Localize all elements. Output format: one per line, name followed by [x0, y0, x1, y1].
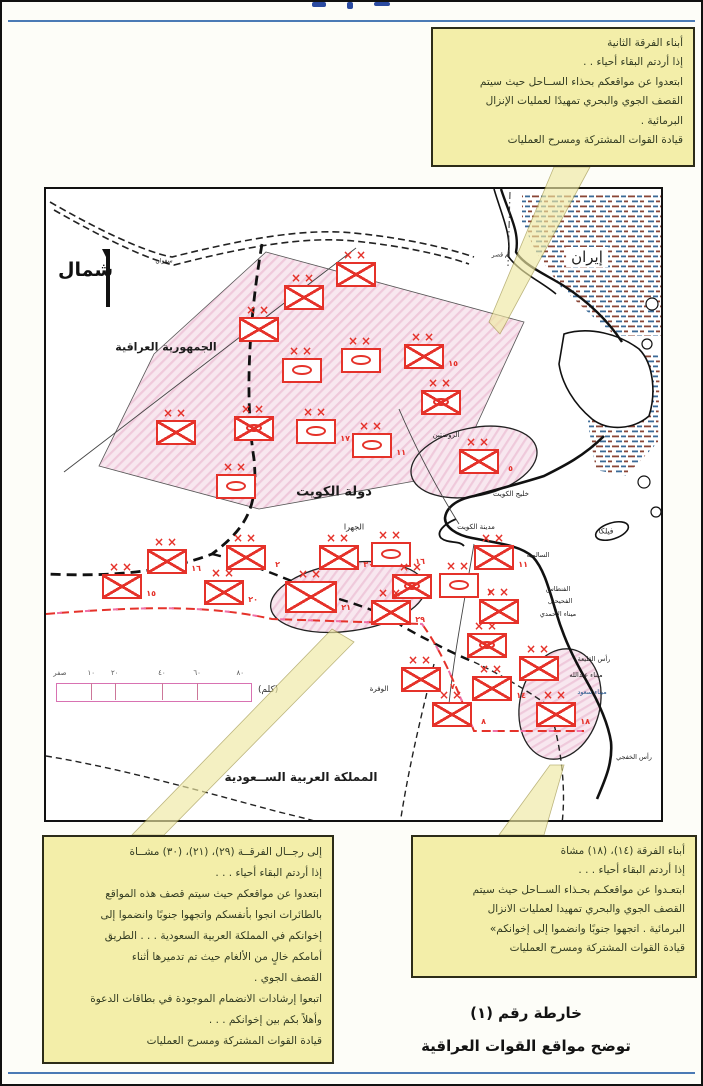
infantry-division-symbol: ××٥ — [459, 449, 499, 474]
infantry-division-symbol: ××٢٠ — [204, 580, 244, 605]
bubiyan-island — [559, 331, 653, 428]
callout-line: قيادة القوات المشتركة ومسرح العمليات — [54, 1031, 322, 1052]
top-rule — [8, 20, 695, 22]
scale-tick: ٢٠ — [111, 669, 119, 677]
division-number: ١٨ — [580, 717, 590, 726]
callout-line: إذا أردتم البقاء أحياء . . — [443, 53, 683, 72]
infantry-division-symbol: ××٨ — [432, 702, 472, 727]
callout-line: اتبعوا إرشادات الانضمام الموجودة في بطاق… — [54, 989, 322, 1010]
place-label: الجمهورية العراقية — [115, 341, 216, 354]
division-echelon-mark: ×× — [538, 689, 574, 701]
islet — [638, 476, 650, 488]
islet — [651, 507, 661, 517]
islet — [642, 339, 652, 349]
scale-divider — [91, 683, 92, 700]
division-number: ١١ — [518, 560, 528, 569]
scale-tick: ١٠ — [88, 669, 96, 677]
division-echelon-mark: ×× — [521, 643, 557, 655]
callout-divisions-29-21-30: إلى رجــال الفرقــة (٢٩)، (٢١)، (٣٠) مشـ… — [42, 835, 334, 1064]
callout-line: أمامكم خالٍ من الألغام حيث تم تدميرها أث… — [54, 947, 322, 968]
infantry-division-symbol: ××٢١ — [285, 581, 337, 613]
armored-division-symbol: ×× — [282, 358, 322, 383]
division-echelon-mark: ×× — [284, 345, 320, 357]
armor-oval-icon — [306, 426, 326, 437]
scale-tick: صفر — [53, 669, 66, 677]
division-echelon-mark: ×× — [236, 403, 272, 415]
place-label: ميناء سعود — [577, 688, 606, 696]
division-echelon-mark: ×× — [423, 377, 459, 389]
division-echelon-mark: ×× — [241, 304, 277, 316]
caption-line2: توضح مواقع القوات العراقية — [396, 1030, 656, 1063]
scale-tick: ٤٠ — [158, 669, 166, 677]
callout-line: إخوانكم في المملكة العربية السعودية . . … — [54, 926, 322, 947]
division-echelon-mark: ×× — [286, 272, 322, 284]
scale-divider — [197, 683, 198, 700]
armored-division-symbol: ×× — [216, 474, 256, 499]
division-echelon-mark: ×× — [321, 532, 357, 544]
scale-bar: صفر١٠٢٠٤٠٦٠٨٠ (كلم) — [56, 669, 252, 703]
division-number: ٢ — [275, 560, 280, 569]
place-label: السالمية — [527, 551, 550, 559]
clipped-header-mark — [347, 2, 353, 9]
caption-line1: خارطة رقم (١) — [396, 997, 656, 1030]
scale-divider — [115, 683, 116, 700]
armor-oval-icon — [246, 424, 262, 432]
scale-unit-label: (كلم) — [258, 685, 278, 695]
infantry-division-symbol: ××١١ — [474, 545, 514, 570]
division-echelon-mark: ×× — [206, 567, 242, 579]
division-echelon-mark: ×× — [403, 654, 439, 666]
islet — [646, 298, 658, 310]
place-label: خليج الكويت — [493, 490, 529, 498]
division-echelon-mark: ×× — [158, 407, 194, 419]
callout-line: البرمائية . اتجهوا جنوبًا وانضموا إلى إخ… — [423, 920, 685, 939]
division-echelon-mark: ×× — [343, 335, 379, 347]
north-arrow-icon — [106, 249, 110, 307]
callout-line: ابتعدوا عن مواقعكم حيث سيتم قصف هذه المو… — [54, 884, 322, 905]
armor-oval-icon — [433, 398, 449, 406]
callout-line: أبناء الفرقة الثانية — [443, 34, 683, 53]
infantry-division-symbol: ××١٤ — [472, 676, 512, 701]
callout-line: البرمائية . — [443, 112, 683, 131]
infantry-division-symbol: ××١٥ — [102, 574, 142, 599]
scanned-map-page: شمال ××××××××××××١٥××××××××١٧××١١××××٥××… — [0, 0, 703, 1086]
scale-divider — [162, 683, 163, 700]
place-label: سفوان — [155, 258, 172, 265]
callout-line: أبناء الفرقة (١٤)، (١٨) مشاة — [423, 842, 685, 861]
place-label: ميناء عبدالله — [569, 671, 602, 679]
division-echelon-mark: ×× — [481, 586, 517, 598]
division-echelon-mark: ×× — [228, 532, 264, 544]
infantry-division-symbol: ×× — [284, 285, 324, 310]
infantry-division-symbol: ×× — [156, 420, 196, 445]
callout-line: ابتعدوا عن مواقعكم بحذاء الســاحل حيث سي… — [443, 73, 683, 92]
callout-line: القصف الجوي والبحري تمهيدًا لعمليات الإن… — [443, 92, 683, 111]
division-echelon-mark: ×× — [441, 560, 477, 572]
place-label: ميناء الأحمدي — [540, 610, 576, 618]
place-label: الوفرة — [370, 685, 389, 693]
armored-division-symbol: ××١٧ — [296, 419, 336, 444]
armor-oval-icon — [479, 641, 495, 649]
mechanized-division-symbol: ×× — [421, 390, 461, 415]
callout-line: قيادة القوات المشتركة ومسرح العمليات — [423, 939, 685, 958]
division-echelon-mark: ×× — [287, 568, 335, 580]
division-number: ١٥ — [146, 589, 156, 598]
division-number: ٢٠ — [248, 595, 258, 604]
division-number: ٨ — [481, 717, 486, 726]
callout-line: القصف الجوي . — [54, 968, 322, 989]
division-echelon-mark: ×× — [373, 587, 409, 599]
division-number: ١١ — [396, 448, 406, 457]
armor-oval-icon — [351, 355, 371, 366]
place-label: مدينة الكويت — [457, 523, 495, 531]
armor-oval-icon — [381, 549, 401, 560]
infantry-division-symbol: ××١٥ — [404, 344, 444, 369]
clipped-header-mark — [312, 2, 326, 7]
armor-oval-icon — [226, 481, 246, 492]
north-label: شمال — [58, 259, 113, 281]
division-number: ٥ — [508, 464, 513, 473]
infantry-division-symbol: ××١٨ — [536, 702, 576, 727]
division-echelon-mark: ×× — [434, 689, 470, 701]
armored-division-symbol: ×× — [341, 348, 381, 373]
callout-divisions-14-18: أبناء الفرقة (١٤)، (١٨) مشاةإذا أردتم ال… — [411, 835, 697, 978]
infantry-division-symbol: ××٢٩ — [371, 600, 411, 625]
place-label: الروضتين — [433, 431, 460, 439]
division-echelon-mark: ×× — [104, 561, 140, 573]
scale-tick: ٨٠ — [236, 669, 244, 677]
division-echelon-mark: ×× — [354, 420, 390, 432]
infantry-division-symbol: ×× — [239, 317, 279, 342]
place-label: إيران — [566, 247, 608, 267]
infantry-division-symbol: ××٣٠ — [319, 545, 359, 570]
division-number: ١٥ — [448, 359, 458, 368]
division-echelon-mark: ×× — [461, 436, 497, 448]
place-label: فيلكا — [599, 527, 614, 536]
callout-line: إذا أردتم البقاء أحياء . . . — [54, 863, 322, 884]
callout-line: قيادة القوات المشتركة ومسرح العمليات — [443, 131, 683, 150]
place-label: الفحيحيل — [548, 597, 572, 605]
callout-line: ابتعـدوا عن مواقعكـم بحـذاء الســاحل حيث… — [423, 881, 685, 900]
callout-line: إلى رجــال الفرقــة (٢٩)، (٢١)، (٣٠) مشـ… — [54, 842, 322, 863]
callout-line: القصف الجوي والبحري تمهيدا لعمليات الانز… — [423, 900, 685, 919]
division-echelon-mark: ×× — [218, 461, 254, 473]
place-label: رأس الخفجي — [616, 753, 652, 761]
callout-line: وأهلاً بكم بين إخوانكم . . . — [54, 1010, 322, 1031]
armor-oval-icon — [292, 365, 312, 376]
armor-oval-icon — [362, 440, 382, 451]
division-number: ٢١ — [341, 603, 351, 612]
division-number: ١٧ — [340, 434, 350, 443]
place-label: الفنطاس — [546, 585, 570, 593]
division-echelon-mark: ×× — [469, 620, 505, 632]
kuwait-theater-map: شمال ××××××××××××١٥××××××××١٧××١١××××٥××… — [44, 187, 663, 822]
place-label: المملكة العربية الســعودية — [224, 770, 377, 784]
callout-second-division: أبناء الفرقة الثانيةإذا أردتم البقاء أحي… — [431, 27, 695, 167]
division-echelon-mark: ×× — [373, 529, 409, 541]
armor-oval-icon — [449, 580, 469, 591]
division-echelon-mark: ×× — [476, 532, 512, 544]
division-echelon-mark: ×× — [394, 561, 430, 573]
place-label: الجهرا — [344, 523, 364, 532]
division-number: ١٦ — [191, 564, 201, 573]
callout-line: إذا أردتم البقاء أحياء . . . — [423, 861, 685, 880]
division-number: ١٤ — [516, 691, 526, 700]
bottom-rule — [8, 1072, 695, 1074]
callout-line: بالطائرات انجوا بأنفسكم واتجهوا جنوبًا و… — [54, 905, 322, 926]
map-caption: خارطة رقم (١) توضح مواقع القوات العراقية — [396, 997, 656, 1063]
division-number: ٢٩ — [415, 615, 425, 624]
armored-division-symbol: ××١١ — [352, 433, 392, 458]
scale-bar-body — [56, 683, 252, 702]
division-echelon-mark: ×× — [298, 406, 334, 418]
division-echelon-mark: ×× — [406, 331, 442, 343]
place-label: رأس القليعة — [578, 655, 611, 663]
division-echelon-mark: ×× — [149, 536, 185, 548]
mechanized-division-symbol: ×× — [467, 633, 507, 658]
place-label: دولة الكويت — [296, 485, 372, 500]
division-echelon-mark: ×× — [474, 663, 510, 675]
saudi-inner-border — [46, 756, 324, 822]
mechanized-division-symbol: ×× — [234, 416, 274, 441]
infantry-division-symbol: ×× — [519, 656, 559, 681]
infantry-division-symbol: ××١٦ — [147, 549, 187, 574]
scale-tick: ٦٠ — [193, 669, 201, 677]
clipped-header-mark — [374, 2, 390, 6]
division-echelon-mark: ×× — [338, 249, 374, 261]
infantry-division-symbol: ×× — [336, 262, 376, 287]
armored-division-symbol: ××٣ — [439, 573, 479, 598]
place-label: أم قصر — [492, 252, 511, 259]
